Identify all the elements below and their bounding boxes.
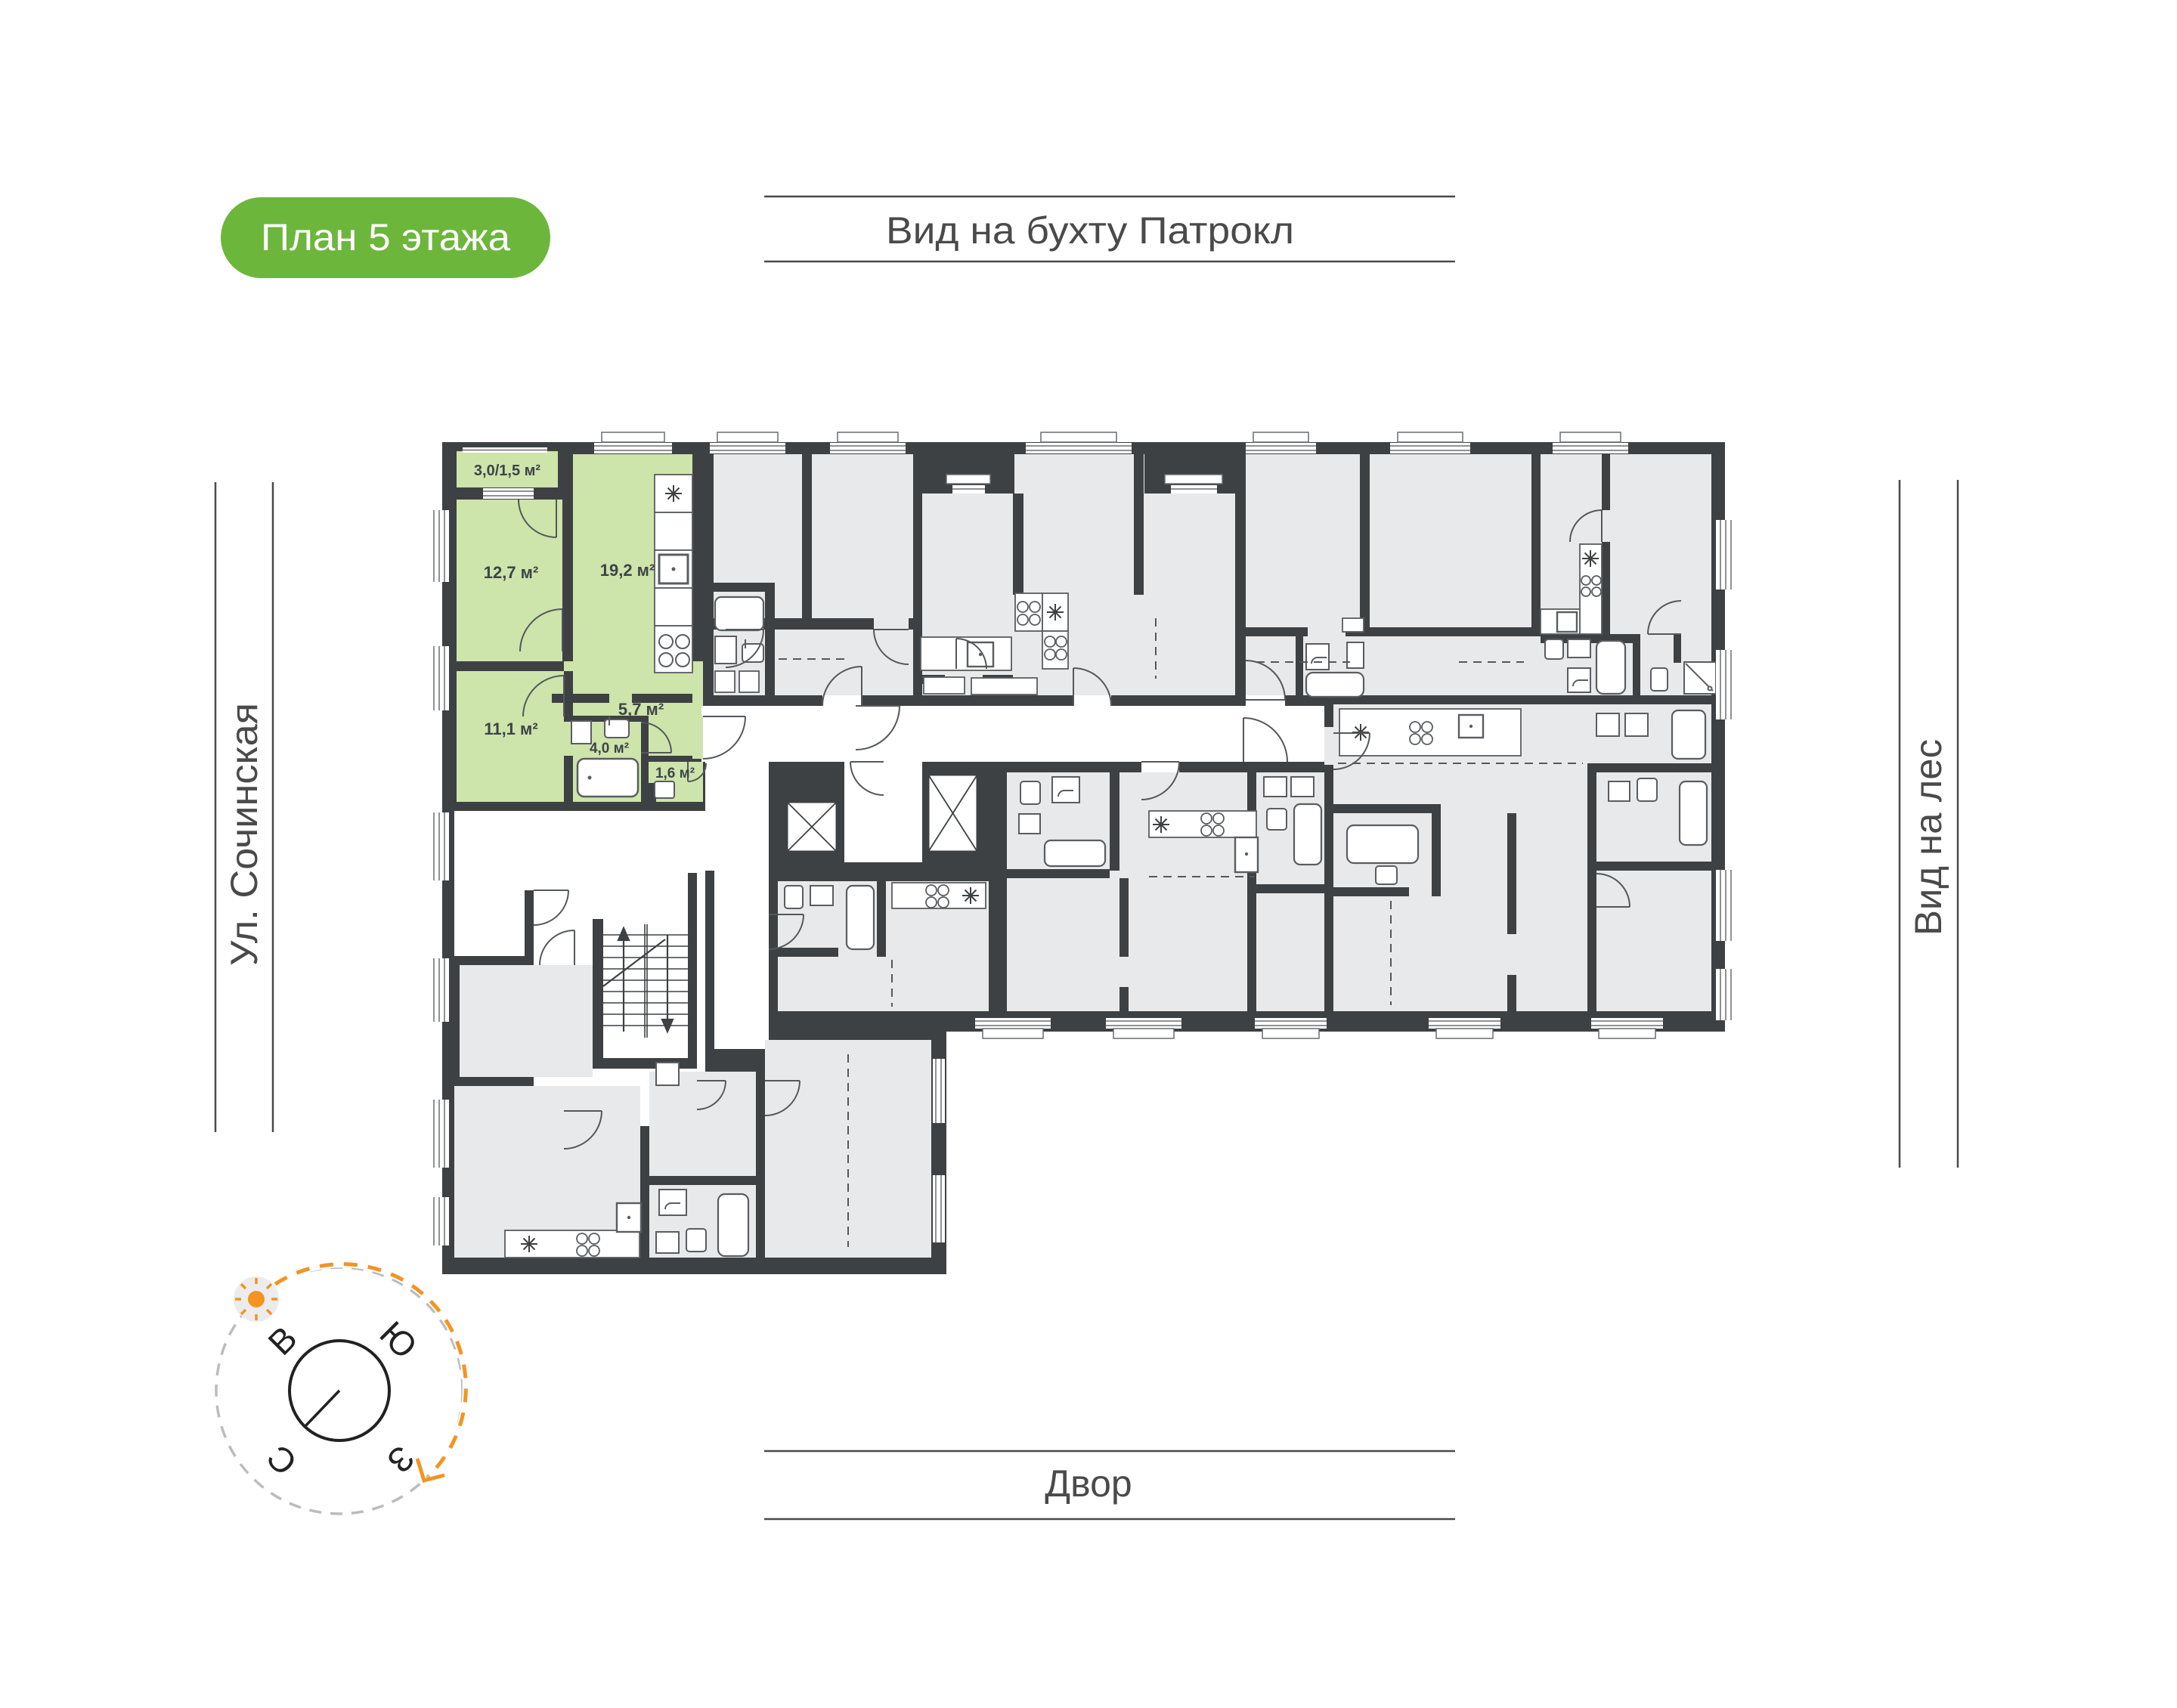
- svg-text:3,0/1,5 м²: 3,0/1,5 м²: [474, 463, 541, 479]
- svg-text:Ул. Сочинская: Ул. Сочинская: [223, 703, 265, 966]
- svg-text:Ю: Ю: [372, 1313, 425, 1366]
- svg-text:Вид на бухту Патрокл: Вид на бухту Патрокл: [886, 209, 1294, 252]
- svg-text:1,6 м²: 1,6 м²: [655, 766, 695, 781]
- svg-text:З: З: [379, 1438, 422, 1481]
- svg-text:4,0 м²: 4,0 м²: [590, 741, 629, 757]
- svg-text:11,1 м²: 11,1 м²: [484, 719, 537, 738]
- svg-text:12,7 м²: 12,7 м²: [484, 563, 539, 582]
- svg-text:5,7 м²: 5,7 м²: [618, 700, 664, 719]
- svg-text:С: С: [259, 1437, 305, 1483]
- svg-text:В: В: [260, 1318, 304, 1362]
- svg-text:Двор: Двор: [1045, 1462, 1132, 1505]
- svg-text:Вид на лес: Вид на лес: [1907, 739, 1949, 936]
- svg-text:План 5 этажа: План 5 этажа: [261, 216, 510, 258]
- svg-text:19,2 м²: 19,2 м²: [600, 561, 655, 580]
